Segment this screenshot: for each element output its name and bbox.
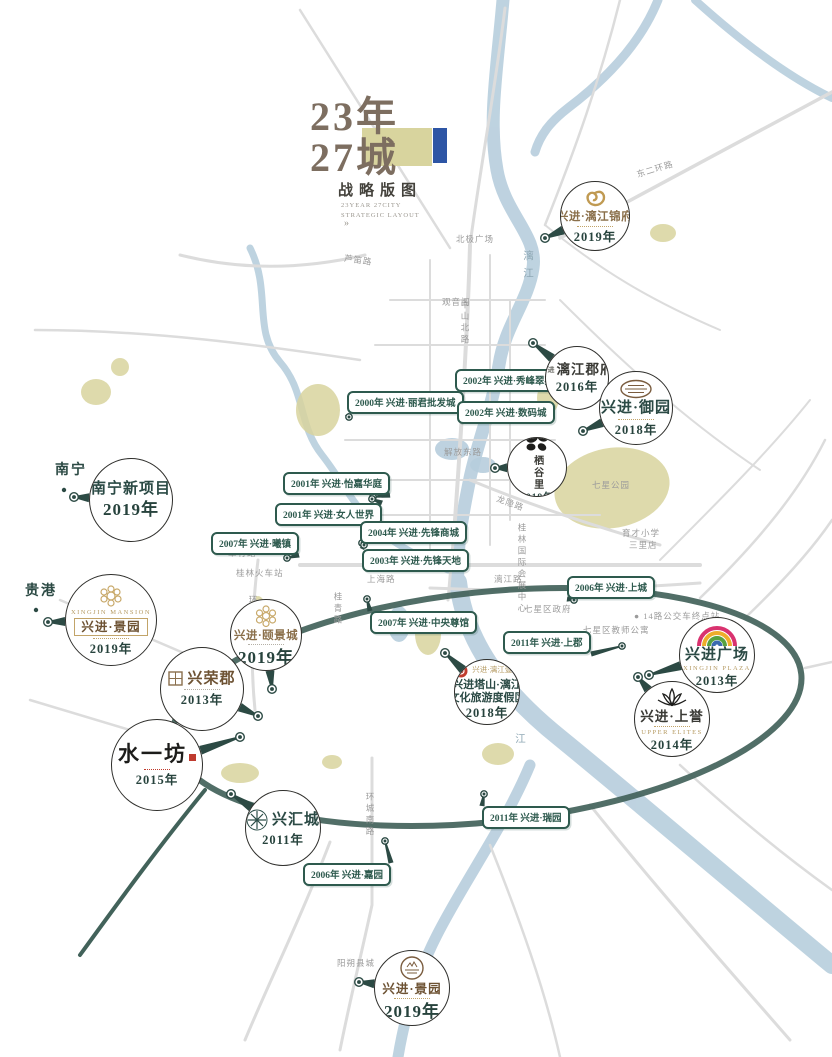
project-name: 兴进·景园 [74, 618, 147, 636]
project-year: 2019年 [103, 500, 159, 519]
road-label: 桂林火车站 [236, 567, 284, 579]
decorative-line [248, 644, 284, 645]
title-english-line1: 23YEAR 27CITY [341, 202, 401, 209]
timeline-label: 2001年 兴进·怡嘉华庭 [283, 472, 390, 495]
project-badge-nanning-new-project: 南宁新项目2019年 [89, 458, 173, 542]
project-badge-qiguli: 栖谷里2019年 [507, 437, 567, 497]
project-logo-row: 兴荣郡 [168, 671, 235, 688]
project-subtitle: XINGJIN PLAZA [683, 665, 751, 672]
road-label: 七星区政府 [524, 603, 572, 615]
project-name-line2: 文化旅游度假区 [454, 692, 520, 704]
timeline-label: 2006年 兴进·上城 [567, 576, 655, 599]
timeline-label: 2003年 兴进·先锋天地 [362, 549, 469, 572]
project-badge-xingjin-shangyu: 兴进·上誉UPPER ELITES2014年 [634, 681, 710, 757]
timeline-label: 2006年 兴进·嘉园 [303, 863, 391, 886]
project-year: 2016年 [556, 380, 599, 394]
road-label: 漓江 [520, 250, 535, 285]
timeline-label: 2011年 兴进·瑞园 [482, 806, 570, 829]
project-badge-xinghuicheng: 兴汇城2011年 [245, 790, 321, 866]
strategic-map-poster: 23年 27城 战略版图 23YEAR 27CITY STRATEGIC LAY… [0, 0, 832, 1057]
title-cities: 27城 [310, 138, 399, 178]
road-label: 环城南路 [364, 792, 376, 838]
road-label: 七星区教师公寓 [583, 624, 650, 636]
decorative-line [394, 998, 430, 999]
project-name: 兴荣郡 [187, 671, 235, 688]
project-year: 2013年 [181, 693, 224, 707]
title-english: 23YEAR 27CITY STRATEGIC LAYOUT [341, 201, 420, 222]
road-label: 观音阁 [442, 296, 471, 308]
project-name: 兴汇城 [272, 812, 320, 829]
project-badge-xingjin-yuyuan: 兴进·御园2018年 [599, 371, 673, 445]
road-label: 解放东路 [444, 446, 482, 458]
project-sub-top: XINGJIN MANSION [71, 609, 151, 616]
road-label: 桂林国际会展中心 [516, 523, 528, 615]
project-name: 南宁新项目 [91, 481, 171, 498]
project-badge-yijingcheng: 兴进·颐景城2019年 [230, 599, 302, 671]
road-label: 七星公园 [592, 479, 630, 491]
title-years: 23年 [310, 97, 399, 137]
lattice-icon [168, 671, 183, 686]
decorative-line [618, 419, 654, 420]
project-name: 兴进广场 [685, 647, 749, 664]
road-label: 北极广场 [456, 233, 494, 245]
project-logo-row: 兴汇城 [246, 809, 320, 831]
city-marker-南宁: 南宁 [55, 459, 87, 479]
title-blue-bar [433, 128, 447, 163]
decorative-line [144, 769, 170, 770]
rosette-icon [99, 584, 123, 608]
emblem-icon [399, 955, 425, 981]
flower-icon [253, 603, 279, 629]
project-badge-xingjin-plaza: 兴进广场XINGJIN PLAZA2013年 [679, 617, 755, 693]
project-name: 兴进·漓江锦府 [560, 211, 630, 224]
project-subtitle: UPPER ELITES [641, 729, 703, 736]
project-name: 兴进塔山·漓江 [454, 679, 520, 691]
project-badge-lijiang-jinfu: 兴进·漓江锦府2019年 [560, 181, 630, 251]
road-label: 育才小学 [622, 527, 660, 539]
title-english-line2: STRATEGIC LAYOUT [341, 212, 420, 219]
project-year: 2019年 [90, 642, 133, 656]
road-label: 阳朔县城 [337, 957, 375, 969]
medallion-icon [246, 809, 268, 831]
gold-crest-icon [582, 188, 608, 210]
ornate-plate-icon [619, 379, 653, 399]
decorative-line [184, 689, 220, 690]
project-name: 兴进漓江郡府 [545, 362, 609, 377]
timeline-label: 2004年 兴进·先锋商城 [360, 521, 467, 544]
project-year: 2015年 [136, 773, 179, 787]
timeline-label: 2007年 兴进·曦镇 [211, 532, 299, 555]
project-name: 水一坊 [118, 743, 196, 767]
project-year: 2013年 [696, 674, 739, 688]
title-arrow: » [344, 218, 349, 229]
project-name-prefix: 兴进 [545, 366, 556, 374]
project-badge-shuiyifang: 水一坊2015年 [111, 719, 203, 811]
road-label: 桂青路 [332, 592, 344, 627]
title-subtitle: 战略版图 [338, 179, 422, 200]
project-badge-tashan-resort: 兴进·漓江壹号兴进塔山·漓江文化旅游度假区2018年 [454, 659, 520, 725]
timeline-label: 2002年 兴进·数码城 [457, 401, 555, 424]
decorative-line [577, 226, 613, 227]
lotus-icon [655, 686, 689, 708]
project-year: 2011年 [262, 833, 304, 847]
city-marker-贵港: 贵港 [25, 580, 57, 600]
project-name: 兴进·御园 [601, 400, 671, 417]
road-label: 江 [512, 733, 527, 751]
project-year: 2019年 [238, 648, 294, 667]
project-badge-guigang-jingyuan: XINGJIN MANSION兴进·景园2019年 [65, 574, 157, 666]
road-label: 三里店 [629, 539, 658, 551]
project-name: 兴进·景园 [382, 982, 441, 996]
decorative-line [654, 726, 690, 727]
project-year: 2018年 [615, 423, 658, 437]
decorative-line [93, 638, 129, 639]
project-name: 兴进·上誉 [640, 709, 704, 724]
project-name: 栖谷里 [531, 455, 542, 491]
project-year: 2014年 [651, 738, 694, 752]
timeline-label: 2000年 兴进·丽君批发城 [347, 391, 464, 414]
project-year: 2018年 [466, 706, 509, 720]
red-seal-stamp-icon [189, 754, 196, 761]
project-badge-xingrongjun: 兴荣郡2013年 [160, 647, 244, 731]
road-label: 上海路 [367, 573, 396, 585]
project-year: 2019年 [384, 1002, 440, 1021]
project-name: 兴进·颐景城 [234, 630, 298, 643]
project-year: 2019年 [574, 230, 617, 244]
timeline-label: 2007年 兴进·中央尊馆 [370, 611, 477, 634]
timeline-label: 2011年 兴进·上郡 [503, 631, 591, 654]
rainbow-arch-icon [694, 622, 740, 646]
clover-icon [522, 437, 552, 454]
project-badge-yangshuo-jingyuan: 兴进·景园2019年 [374, 950, 450, 1026]
